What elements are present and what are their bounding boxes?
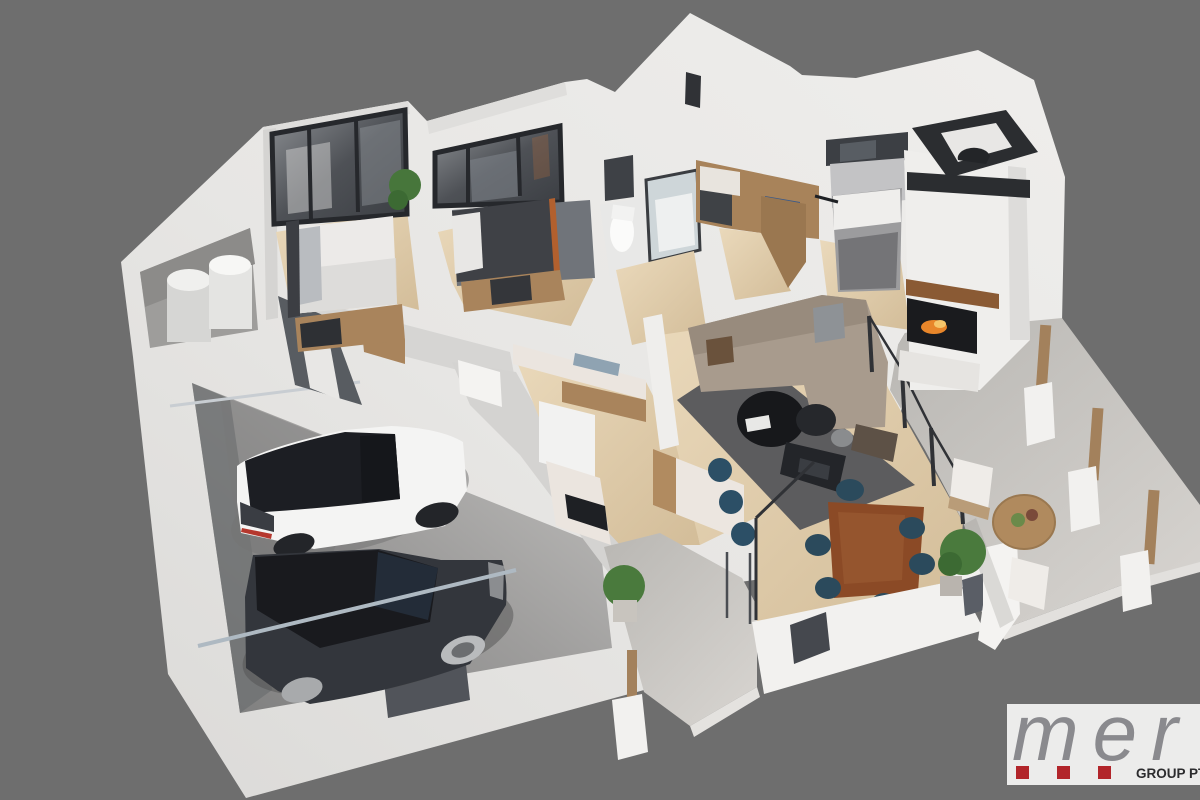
svg-text:mer: mer [1012,688,1192,777]
svg-text:GROUP PT: GROUP PT [1136,766,1200,781]
